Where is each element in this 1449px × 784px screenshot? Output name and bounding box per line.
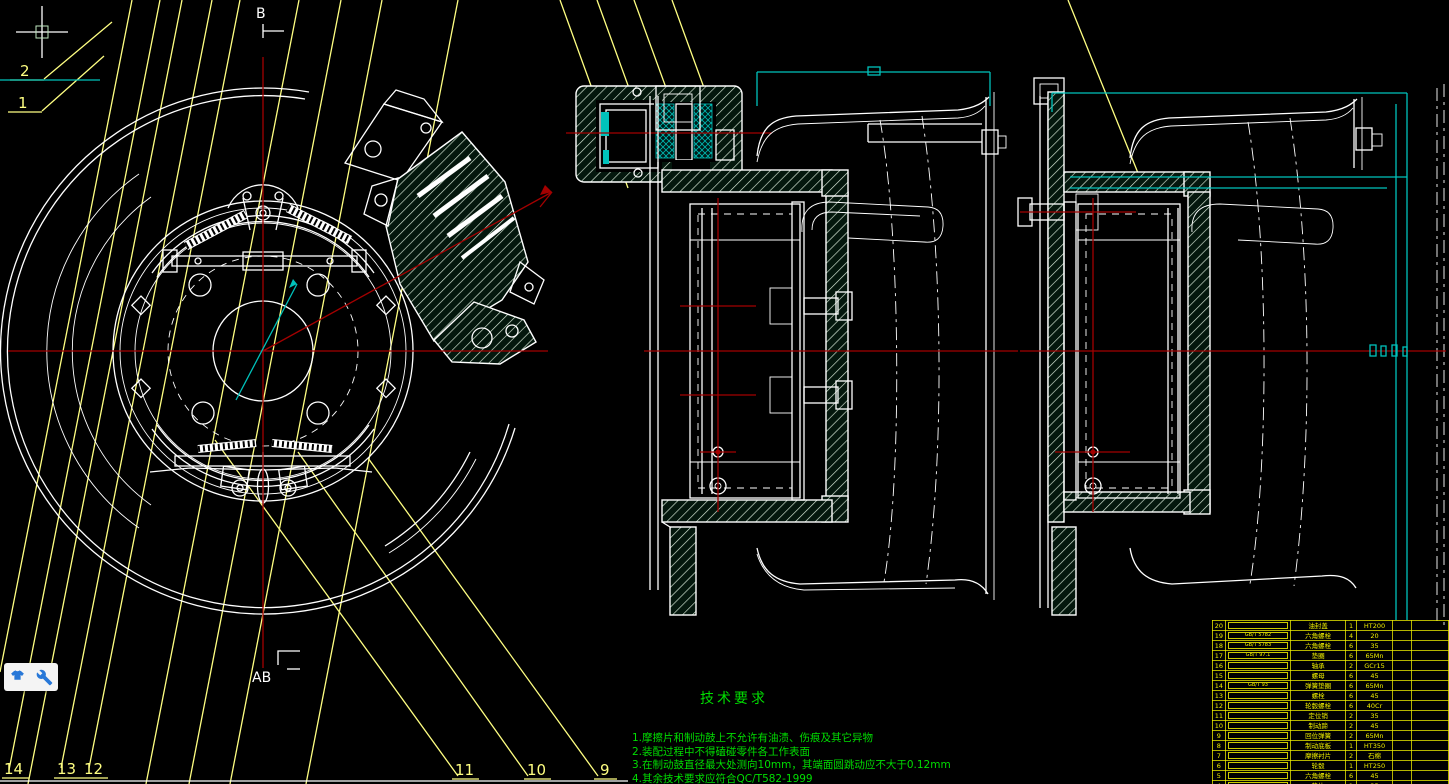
middle-wheel-rim <box>757 92 1006 600</box>
parts-cell-mat: HT350 <box>1357 741 1393 751</box>
parts-cell-x1 <box>1392 631 1411 641</box>
parts-cell-x2 <box>1411 651 1448 661</box>
parts-cell-x2 <box>1411 731 1448 741</box>
parts-cell-x1 <box>1392 681 1411 691</box>
parts-cell-mat: GCr15 <box>1357 661 1393 671</box>
parts-cell-mat: 65Mn <box>1357 681 1393 691</box>
parts-cell-code <box>1225 761 1291 771</box>
parts-cell-x1 <box>1392 641 1411 651</box>
parts-cell-x1 <box>1392 781 1411 784</box>
parts-cell-qty: 2 <box>1346 731 1357 741</box>
parts-cell-name: 轴承 <box>1291 661 1346 671</box>
parts-cell-code <box>1225 711 1291 721</box>
parts-cell-x1 <box>1392 771 1411 781</box>
parts-cell-name: 制动蹄 <box>1291 721 1346 731</box>
parts-table-row: 13螺栓645 <box>1213 691 1449 701</box>
parts-cell-code: GB/T 5782 <box>1225 631 1291 641</box>
tech-requirements-list: 1.摩擦片和制动鼓上不允许有油渍、伤痕及其它异物2.装配过程中不得磕碰零件各工作… <box>632 730 962 784</box>
part-code-box: GB/T 5783 <box>1228 642 1289 649</box>
parts-cell-x2 <box>1411 691 1448 701</box>
parts-cell-qty: 2 <box>1346 721 1357 731</box>
parts-cell-code <box>1225 671 1291 681</box>
parts-cell-qty: 6 <box>1346 651 1357 661</box>
parts-cell-mat: 45 <box>1357 721 1393 731</box>
part-code-box <box>1228 712 1289 719</box>
parts-table-row: 17GB/T 97.1垫圈665Mn <box>1213 651 1449 661</box>
parts-cell-qty: 1 <box>1346 621 1357 631</box>
parts-cell-x2 <box>1411 711 1448 721</box>
parts-cell-name: 轮毂螺栓 <box>1291 701 1346 711</box>
parts-cell-no: 17 <box>1213 651 1226 661</box>
left-view-drum-brake <box>0 57 552 668</box>
parts-table-row: 14GB/T 93弹簧垫圈665Mn <box>1213 681 1449 691</box>
parts-table-row: 4垫片135 <box>1213 781 1449 784</box>
parts-cell-qty: 6 <box>1346 681 1357 691</box>
parts-table-grid: 20油封盖1HT20019GB/T 5782六角螺栓42018GB/T 5783… <box>1212 620 1449 784</box>
parts-cell-name: 垫片 <box>1291 781 1346 784</box>
parts-cell-qty: 1 <box>1346 761 1357 771</box>
parts-cell-code: GB/T 97.1 <box>1225 651 1291 661</box>
parts-cell-code <box>1225 751 1291 761</box>
section-label-ab: AB <box>252 670 271 686</box>
wrench-icon[interactable] <box>36 669 53 686</box>
parts-cell-name: 制动底板 <box>1291 741 1346 751</box>
middle-dimension-lines <box>757 67 990 106</box>
parts-cell-name: 六角螺栓 <box>1291 641 1346 651</box>
parts-cell-x1 <box>1392 671 1411 681</box>
parts-cell-qty: 6 <box>1346 691 1357 701</box>
right-hub-bearing <box>1018 194 1180 500</box>
parts-cell-code <box>1225 621 1291 631</box>
parts-cell-mat: HT200 <box>1357 621 1393 631</box>
right-section-view <box>1018 78 1446 626</box>
parts-table-row: 18GB/T 5783六角螺栓635 <box>1213 641 1449 651</box>
overlay-toolbar[interactable] <box>4 663 58 691</box>
cad-viewport[interactable]: 2 1 14 13 12 11 10 9 B AB <box>0 0 1449 784</box>
parts-cell-mat: 65Mn <box>1357 651 1393 661</box>
parts-cell-qty: 6 <box>1346 771 1357 781</box>
parts-table-row: 20油封盖1HT200 <box>1213 621 1449 631</box>
section-mark-bottom <box>278 651 300 669</box>
leader-lines <box>0 0 1140 784</box>
parts-cell-mat: 35 <box>1357 711 1393 721</box>
parts-cell-name: 油封盖 <box>1291 621 1346 631</box>
parts-cell-name: 弹簧垫圈 <box>1291 681 1346 691</box>
parts-table: 20油封盖1HT20019GB/T 5782六角螺栓42018GB/T 5783… <box>1212 620 1449 784</box>
parts-cell-no: 14 <box>1213 681 1226 691</box>
parts-cell-no: 20 <box>1213 621 1226 631</box>
parts-table-row: 15螺母645 <box>1213 671 1449 681</box>
parts-cell-no: 16 <box>1213 661 1226 671</box>
parts-cell-qty: 6 <box>1346 671 1357 681</box>
tech-requirements-title: 技术要求 <box>700 688 962 708</box>
parts-cell-x2 <box>1411 641 1448 651</box>
parts-cell-qty: 2 <box>1346 751 1357 761</box>
parts-table-row: 6轮毂1HT250 <box>1213 761 1449 771</box>
parts-cell-name: 螺母 <box>1291 671 1346 681</box>
parts-cell-no: 8 <box>1213 741 1226 751</box>
parts-table-row: 10制动蹄245 <box>1213 721 1449 731</box>
balloon-13: 13 <box>57 760 76 778</box>
part-code-box <box>1228 672 1289 679</box>
balloon-11: 11 <box>455 761 474 779</box>
balloon-labels: 2 1 14 13 12 11 10 9 <box>4 62 610 779</box>
parts-cell-x2 <box>1411 671 1448 681</box>
parts-cell-mat: 35 <box>1357 781 1393 784</box>
parts-cell-code <box>1225 721 1291 731</box>
parts-cell-name: 定位销 <box>1291 711 1346 721</box>
parts-cell-x2 <box>1411 781 1448 784</box>
parts-table-row: 12轮毂螺栓640Cr <box>1213 701 1449 711</box>
parts-cell-mat: HT250 <box>1357 761 1393 771</box>
part-code-box: GB/T 97.1 <box>1228 652 1289 659</box>
parts-table-row: 11定位销235 <box>1213 711 1449 721</box>
parts-cell-x1 <box>1392 711 1411 721</box>
parts-cell-x2 <box>1411 621 1448 631</box>
parts-cell-qty: 1 <box>1346 781 1357 784</box>
tech-requirement-line: 3.在制动鼓直径最大处测向10mm，其端面圆跳动应不大于0.12mm <box>632 757 962 771</box>
parts-cell-no: 6 <box>1213 761 1226 771</box>
parts-cell-x1 <box>1392 661 1411 671</box>
parts-cell-code <box>1225 771 1291 781</box>
section-labels: B AB <box>252 6 300 686</box>
parts-cell-no: 5 <box>1213 771 1226 781</box>
parts-cell-name: 摩擦衬片 <box>1291 751 1346 761</box>
parts-cell-x2 <box>1411 681 1448 691</box>
parts-cell-code: GB/T 5783 <box>1225 641 1291 651</box>
parts-cell-x1 <box>1392 621 1411 631</box>
balloon-2: 2 <box>20 62 30 80</box>
parts-cell-x2 <box>1411 661 1448 671</box>
parts-cell-x2 <box>1411 631 1448 641</box>
part-code-box <box>1228 732 1289 739</box>
parts-cell-name: 螺栓 <box>1291 691 1346 701</box>
parts-cell-qty: 6 <box>1346 641 1357 651</box>
parts-cell-mat: 45 <box>1357 671 1393 681</box>
bottom-brake-shoe-assembly <box>150 425 374 505</box>
parts-cell-no: 18 <box>1213 641 1226 651</box>
parts-cell-x1 <box>1392 701 1411 711</box>
parts-cell-code <box>1225 691 1291 701</box>
part-code-box <box>1228 742 1289 749</box>
parts-cell-no: 12 <box>1213 701 1226 711</box>
parts-cell-x2 <box>1411 761 1448 771</box>
part-code-box <box>1228 762 1289 769</box>
caliper-wheel-cylinder <box>345 90 544 364</box>
parts-cell-qty: 6 <box>1346 701 1357 711</box>
parts-cell-code <box>1225 731 1291 741</box>
part-code-box <box>1228 752 1289 759</box>
parts-cell-no: 7 <box>1213 751 1226 761</box>
tech-requirement-line: 2.装配过程中不得磕碰零件各工作表面 <box>632 744 962 758</box>
part-code-box: GB/T 93 <box>1228 682 1289 689</box>
part-code-box: GB/T 5782 <box>1228 632 1289 639</box>
parts-cell-qty: 2 <box>1346 661 1357 671</box>
parts-cell-x2 <box>1411 771 1448 781</box>
parts-table-row: 9回位弹簧265Mn <box>1213 731 1449 741</box>
parts-table-row: 19GB/T 5782六角螺栓420 <box>1213 631 1449 641</box>
part-code-box <box>1228 692 1289 699</box>
parts-cell-x2 <box>1411 721 1448 731</box>
parts-cell-mat: 45 <box>1357 691 1393 701</box>
balloon-10: 10 <box>527 761 546 779</box>
parts-cell-code: GB/T 93 <box>1225 681 1291 691</box>
parts-cell-mat: 35 <box>1357 641 1393 651</box>
parts-cell-x2 <box>1411 751 1448 761</box>
parts-cell-no: 15 <box>1213 671 1226 681</box>
parts-cell-mat: 20 <box>1357 631 1393 641</box>
section-label-b: B <box>256 6 266 22</box>
balloon-14: 14 <box>4 760 23 778</box>
parts-cell-mat: 65Mn <box>1357 731 1393 741</box>
parts-cell-name: 六角螺栓 <box>1291 631 1346 641</box>
parts-cell-mat: 40Cr <box>1357 701 1393 711</box>
parts-cell-x1 <box>1392 651 1411 661</box>
parts-cell-x1 <box>1392 741 1411 751</box>
part-code-box <box>1228 622 1289 629</box>
right-centerlines <box>1020 198 1446 512</box>
parts-cell-name: 回位弹簧 <box>1291 731 1346 741</box>
parts-cell-mat: 石棉 <box>1357 751 1393 761</box>
parts-cell-no: 10 <box>1213 721 1226 731</box>
balloon-12: 12 <box>84 760 103 778</box>
technical-requirements: 技术要求 1.摩擦片和制动鼓上不允许有油渍、伤痕及其它异物2.装配过程中不得磕碰… <box>632 688 962 784</box>
parts-cell-x2 <box>1411 741 1448 751</box>
parts-cell-code <box>1225 701 1291 711</box>
parts-cell-x2 <box>1411 701 1448 711</box>
parts-table-row: 7摩擦衬片2石棉 <box>1213 751 1449 761</box>
parts-cell-name: 轮毂 <box>1291 761 1346 771</box>
parts-cell-code <box>1225 661 1291 671</box>
parts-cell-no: 13 <box>1213 691 1226 701</box>
section-mark-top <box>263 24 284 38</box>
parts-cell-x1 <box>1392 751 1411 761</box>
parts-cell-no: 11 <box>1213 711 1226 721</box>
tech-requirement-line: 4.其余技术要求应符合QC/T582-1999 <box>632 771 962 784</box>
parts-cell-no: 9 <box>1213 731 1226 741</box>
part-code-box <box>1228 662 1289 669</box>
parts-table-row: 8制动底板1HT350 <box>1213 741 1449 751</box>
part-code-box <box>1228 722 1289 729</box>
tshirt-icon[interactable] <box>9 669 26 686</box>
balloon-9: 9 <box>600 761 610 779</box>
parts-cell-name: 垫圈 <box>1291 651 1346 661</box>
parts-cell-name: 六角螺栓 <box>1291 771 1346 781</box>
parts-cell-x1 <box>1392 731 1411 741</box>
parts-cell-qty: 4 <box>1346 631 1357 641</box>
parts-cell-qty: 1 <box>1346 741 1357 751</box>
balloon-1: 1 <box>18 94 28 112</box>
parts-table-row: 5六角螺栓645 <box>1213 771 1449 781</box>
parts-cell-mat: 45 <box>1357 771 1393 781</box>
tech-requirement-line: 1.摩擦片和制动鼓上不允许有油渍、伤痕及其它异物 <box>632 730 962 744</box>
parts-cell-code <box>1225 781 1291 784</box>
parts-cell-code <box>1225 741 1291 751</box>
parts-cell-qty: 2 <box>1346 711 1357 721</box>
right-drum-section <box>1048 92 1210 615</box>
part-code-box <box>1228 702 1289 709</box>
parts-table-row: 16轴承2GCr15 <box>1213 661 1449 671</box>
parts-cell-x1 <box>1392 761 1411 771</box>
crosshair-cursor <box>16 6 68 58</box>
parts-cell-x1 <box>1392 691 1411 701</box>
parts-cell-x1 <box>1392 721 1411 731</box>
part-code-box <box>1228 772 1289 779</box>
parts-cell-no: 19 <box>1213 631 1226 641</box>
parts-cell-no: 4 <box>1213 781 1226 784</box>
